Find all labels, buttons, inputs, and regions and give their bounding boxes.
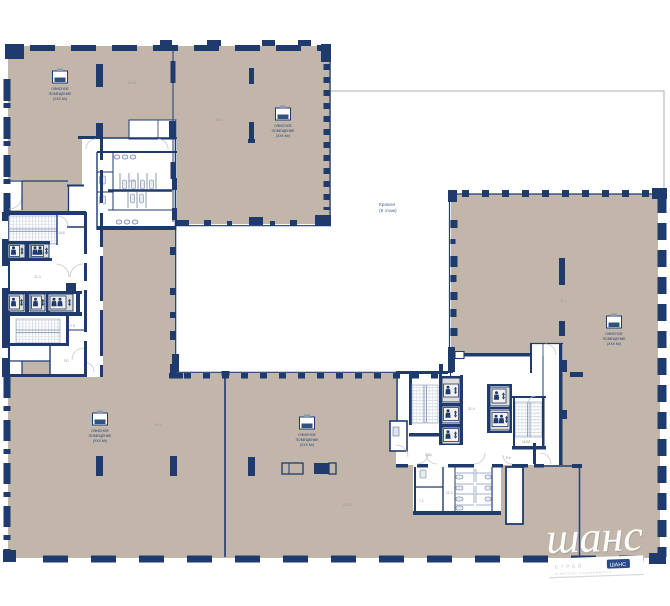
svg-text:2.9: 2.9: [70, 324, 75, 328]
svg-text:(ХХХ М²): (ХХХ М²): [53, 97, 67, 101]
svg-text:21.4: 21.4: [468, 407, 475, 411]
svg-text:(ХХХ М²): (ХХХ М²): [300, 443, 314, 447]
svg-text:64.2: 64.2: [155, 423, 162, 427]
svg-text:(ХХХ М²): (ХХХ М²): [93, 439, 107, 443]
svg-text:ПОМЕЩЕНИЕ: ПОМЕЩЕНИЕ: [272, 129, 295, 133]
svg-text:ПОМЕЩЕНИЕ: ПОМЕЩЕНИЕ: [296, 438, 319, 442]
svg-text:21.3: 21.3: [34, 275, 41, 279]
svg-text:12.2: 12.2: [446, 491, 453, 495]
svg-text:41.5: 41.5: [560, 299, 567, 303]
svg-text:ПОМЕЩЕНИЕ: ПОМЕЩЕНИЕ: [49, 92, 72, 96]
svg-text:шанс: шанс: [545, 511, 644, 563]
svg-text:571.6: 571.6: [343, 503, 352, 507]
svg-text:ОФИСНОЕ: ОФИСНОЕ: [298, 433, 316, 437]
svg-text:ПС: ПС: [64, 359, 69, 363]
svg-text:18.6: 18.6: [58, 231, 65, 235]
svg-text:1.54: 1.54: [425, 453, 432, 457]
svg-text:8.6: 8.6: [506, 456, 511, 460]
svg-text:52.67: 52.67: [128, 81, 137, 85]
svg-text:(ХХХ М²): (ХХХ М²): [276, 134, 290, 138]
svg-text:45.8: 45.8: [128, 179, 135, 183]
svg-text:16.98: 16.98: [522, 440, 530, 444]
svg-text:(8 этаж): (8 этаж): [379, 208, 397, 214]
svg-text:ШАНС: ШАНС: [610, 562, 627, 569]
svg-text:ПОМЕЩЕНИЕ: ПОМЕЩЕНИЕ: [89, 434, 112, 438]
svg-text:(ХХХ М²): (ХХХ М²): [607, 342, 621, 346]
svg-text:ОФИСНОЕ: ОФИСНОЕ: [91, 429, 109, 433]
svg-text:ОФИСНОЕ: ОФИСНОЕ: [274, 124, 292, 128]
svg-text:38.2: 38.2: [216, 118, 223, 122]
svg-text:ПОМЕЩЕНИЕ: ПОМЕЩЕНИЕ: [603, 337, 626, 341]
svg-text:Кровля: Кровля: [379, 202, 395, 208]
svg-text:ОФИСНОЕ: ОФИСНОЕ: [51, 87, 69, 91]
svg-text:ОФИСНОЕ: ОФИСНОЕ: [605, 332, 623, 336]
svg-text:7.1: 7.1: [419, 499, 424, 503]
